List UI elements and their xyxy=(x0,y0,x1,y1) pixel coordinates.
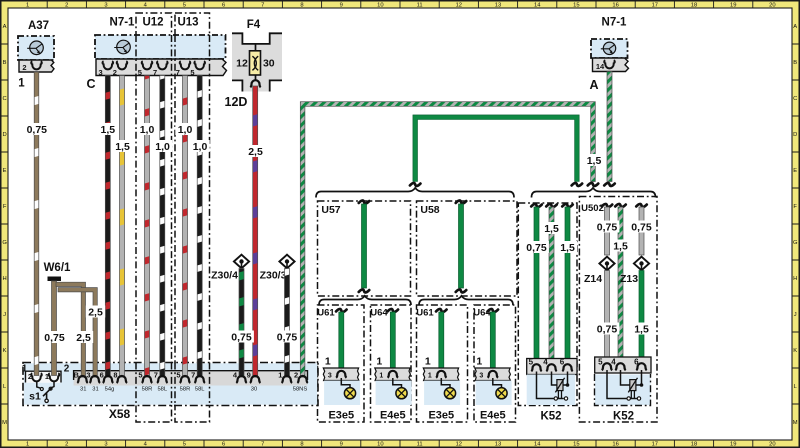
svg-text:U13: U13 xyxy=(177,17,198,29)
svg-text:5: 5 xyxy=(176,371,180,380)
svg-text:F4: F4 xyxy=(247,19,261,31)
svg-text:7: 7 xyxy=(191,371,195,380)
svg-text:58L: 58L xyxy=(195,387,205,393)
svg-text:14: 14 xyxy=(596,62,605,71)
svg-text:0,75: 0,75 xyxy=(597,221,618,233)
svg-text:7: 7 xyxy=(154,371,158,380)
svg-text:2,5: 2,5 xyxy=(88,306,103,318)
svg-text:18: 18 xyxy=(691,442,697,448)
svg-text:31: 31 xyxy=(92,387,98,393)
svg-text:7: 7 xyxy=(153,68,157,77)
svg-text:1: 1 xyxy=(376,356,382,368)
svg-text:U502: U502 xyxy=(581,203,604,214)
svg-text:12: 12 xyxy=(236,58,248,70)
svg-text:17: 17 xyxy=(652,442,658,448)
svg-text:X58: X58 xyxy=(109,407,131,421)
svg-text:Z30/4: Z30/4 xyxy=(211,270,238,282)
svg-text:16: 16 xyxy=(612,442,618,448)
svg-text:1: 1 xyxy=(379,373,383,380)
svg-text:3: 3 xyxy=(104,3,107,9)
svg-text:9: 9 xyxy=(340,442,343,448)
svg-text:1,0: 1,0 xyxy=(178,124,193,136)
svg-text:1,5: 1,5 xyxy=(634,323,649,335)
svg-text:Z30/3: Z30/3 xyxy=(260,270,287,282)
svg-text:1,5: 1,5 xyxy=(560,242,575,254)
svg-text:11: 11 xyxy=(417,442,423,448)
svg-text:17: 17 xyxy=(652,3,658,9)
svg-text:0,75: 0,75 xyxy=(44,332,65,344)
svg-text:1: 1 xyxy=(22,364,28,375)
svg-text:2: 2 xyxy=(65,3,68,9)
svg-text:N7-1: N7-1 xyxy=(110,17,136,29)
svg-text:F: F xyxy=(793,204,797,210)
svg-text:0,75: 0,75 xyxy=(631,221,652,233)
svg-text:10: 10 xyxy=(377,3,383,9)
svg-text:14: 14 xyxy=(534,3,541,9)
svg-text:9: 9 xyxy=(340,3,343,9)
svg-text:8: 8 xyxy=(300,3,303,9)
svg-text:D: D xyxy=(793,132,797,138)
svg-text:0,75: 0,75 xyxy=(526,242,547,254)
svg-text:K52: K52 xyxy=(540,411,561,423)
svg-text:Z13: Z13 xyxy=(620,273,638,285)
svg-text:E3e5: E3e5 xyxy=(328,410,354,422)
svg-text:5: 5 xyxy=(183,3,186,9)
svg-text:15: 15 xyxy=(573,3,579,9)
svg-text:58NS: 58NS xyxy=(293,387,308,393)
svg-text:3: 3 xyxy=(479,373,483,380)
svg-text:20: 20 xyxy=(769,442,775,448)
svg-text:30: 30 xyxy=(251,387,257,393)
svg-text:1: 1 xyxy=(476,356,482,368)
svg-text:1: 1 xyxy=(18,78,25,90)
svg-text:58R: 58R xyxy=(142,387,153,393)
svg-text:E3e5: E3e5 xyxy=(428,410,454,422)
svg-text:C: C xyxy=(793,96,797,102)
svg-text:6: 6 xyxy=(222,442,225,448)
svg-text:D: D xyxy=(3,132,7,138)
svg-text:54g: 54g xyxy=(105,387,115,393)
svg-text:5: 5 xyxy=(138,371,142,380)
svg-text:58R: 58R xyxy=(180,387,191,393)
svg-text:M: M xyxy=(793,420,798,426)
svg-text:2: 2 xyxy=(294,371,298,380)
svg-text:E4e5: E4e5 xyxy=(380,410,406,422)
svg-text:7: 7 xyxy=(176,68,180,77)
svg-text:C: C xyxy=(3,96,7,102)
svg-text:10: 10 xyxy=(377,442,383,448)
svg-text:1,5: 1,5 xyxy=(613,240,628,252)
svg-text:B: B xyxy=(3,60,7,66)
svg-text:15: 15 xyxy=(573,442,579,448)
svg-text:J: J xyxy=(794,312,797,318)
svg-text:0,75: 0,75 xyxy=(231,331,252,343)
svg-text:5: 5 xyxy=(138,68,142,77)
svg-text:1,5: 1,5 xyxy=(115,141,130,153)
svg-text:12: 12 xyxy=(456,442,462,448)
svg-text:1: 1 xyxy=(325,356,331,368)
svg-text:E: E xyxy=(793,168,797,174)
svg-text:3: 3 xyxy=(86,371,90,380)
svg-text:2: 2 xyxy=(64,364,70,375)
svg-text:W6/1: W6/1 xyxy=(44,262,71,274)
svg-text:1: 1 xyxy=(428,373,432,380)
svg-text:A: A xyxy=(589,78,598,92)
svg-text:6: 6 xyxy=(222,3,225,9)
svg-text:1: 1 xyxy=(278,371,282,380)
svg-text:12: 12 xyxy=(456,3,462,9)
svg-text:C: C xyxy=(86,77,95,91)
svg-text:U12: U12 xyxy=(142,17,163,29)
svg-text:U57: U57 xyxy=(321,204,340,216)
svg-text:G: G xyxy=(2,240,7,246)
svg-text:1,0: 1,0 xyxy=(155,141,170,153)
svg-text:3: 3 xyxy=(328,373,332,380)
svg-text:16: 16 xyxy=(612,3,618,9)
svg-text:19: 19 xyxy=(730,3,736,9)
svg-text:K52: K52 xyxy=(613,411,634,423)
svg-text:9: 9 xyxy=(247,371,251,380)
svg-text:H: H xyxy=(3,276,7,282)
svg-text:58L: 58L xyxy=(157,387,167,393)
svg-text:U61: U61 xyxy=(317,308,335,319)
svg-text:13: 13 xyxy=(495,3,501,9)
svg-text:F: F xyxy=(3,204,7,210)
svg-text:0,75: 0,75 xyxy=(277,331,298,343)
svg-text:2: 2 xyxy=(65,442,68,448)
svg-text:N7-1: N7-1 xyxy=(602,17,628,29)
svg-text:J: J xyxy=(3,312,6,318)
svg-text:G: G xyxy=(793,240,798,246)
svg-text:30: 30 xyxy=(263,58,275,70)
svg-text:8: 8 xyxy=(113,371,117,380)
svg-text:31: 31 xyxy=(80,387,86,393)
svg-text:3: 3 xyxy=(99,68,103,77)
svg-text:E: E xyxy=(3,168,7,174)
svg-text:0,75: 0,75 xyxy=(27,124,48,136)
svg-text:0,75: 0,75 xyxy=(597,323,618,335)
svg-text:19: 19 xyxy=(730,442,736,448)
svg-text:Z14: Z14 xyxy=(584,273,602,285)
svg-text:M: M xyxy=(2,420,7,426)
svg-text:U64: U64 xyxy=(370,308,388,319)
svg-text:U58: U58 xyxy=(420,204,439,216)
svg-text:s1: s1 xyxy=(29,391,41,403)
svg-text:1: 1 xyxy=(425,356,431,368)
svg-text:14: 14 xyxy=(534,442,541,448)
svg-text:7: 7 xyxy=(261,442,264,448)
svg-text:1,5: 1,5 xyxy=(587,155,602,167)
svg-text:H: H xyxy=(793,276,797,282)
svg-text:K: K xyxy=(3,348,7,354)
svg-text:11: 11 xyxy=(417,3,423,9)
svg-text:5: 5 xyxy=(190,68,194,77)
svg-text:1: 1 xyxy=(26,3,29,9)
svg-text:12D: 12D xyxy=(225,95,248,109)
svg-text:A: A xyxy=(793,24,797,30)
svg-text:A: A xyxy=(3,24,7,30)
svg-text:3: 3 xyxy=(104,442,107,448)
svg-text:1,0: 1,0 xyxy=(140,124,155,136)
svg-text:A37: A37 xyxy=(28,20,49,32)
svg-text:2,5: 2,5 xyxy=(248,146,263,158)
svg-text:1,0: 1,0 xyxy=(193,141,208,153)
svg-text:6: 6 xyxy=(100,371,104,380)
svg-text:1: 1 xyxy=(26,442,29,448)
svg-text:20: 20 xyxy=(769,3,775,9)
svg-text:K: K xyxy=(793,348,797,354)
svg-text:4: 4 xyxy=(611,358,616,367)
svg-text:2,5: 2,5 xyxy=(76,332,91,344)
svg-text:8: 8 xyxy=(300,442,303,448)
svg-text:U61: U61 xyxy=(416,308,434,319)
svg-text:1,5: 1,5 xyxy=(100,124,115,136)
svg-text:5: 5 xyxy=(183,442,186,448)
svg-text:2: 2 xyxy=(22,63,26,72)
svg-text:13: 13 xyxy=(495,442,501,448)
svg-text:18: 18 xyxy=(691,3,697,9)
svg-text:1,5: 1,5 xyxy=(544,223,559,235)
svg-text:7: 7 xyxy=(261,3,264,9)
svg-text:2: 2 xyxy=(113,68,117,77)
svg-text:E4e5: E4e5 xyxy=(480,410,506,422)
svg-text:B: B xyxy=(793,60,797,66)
